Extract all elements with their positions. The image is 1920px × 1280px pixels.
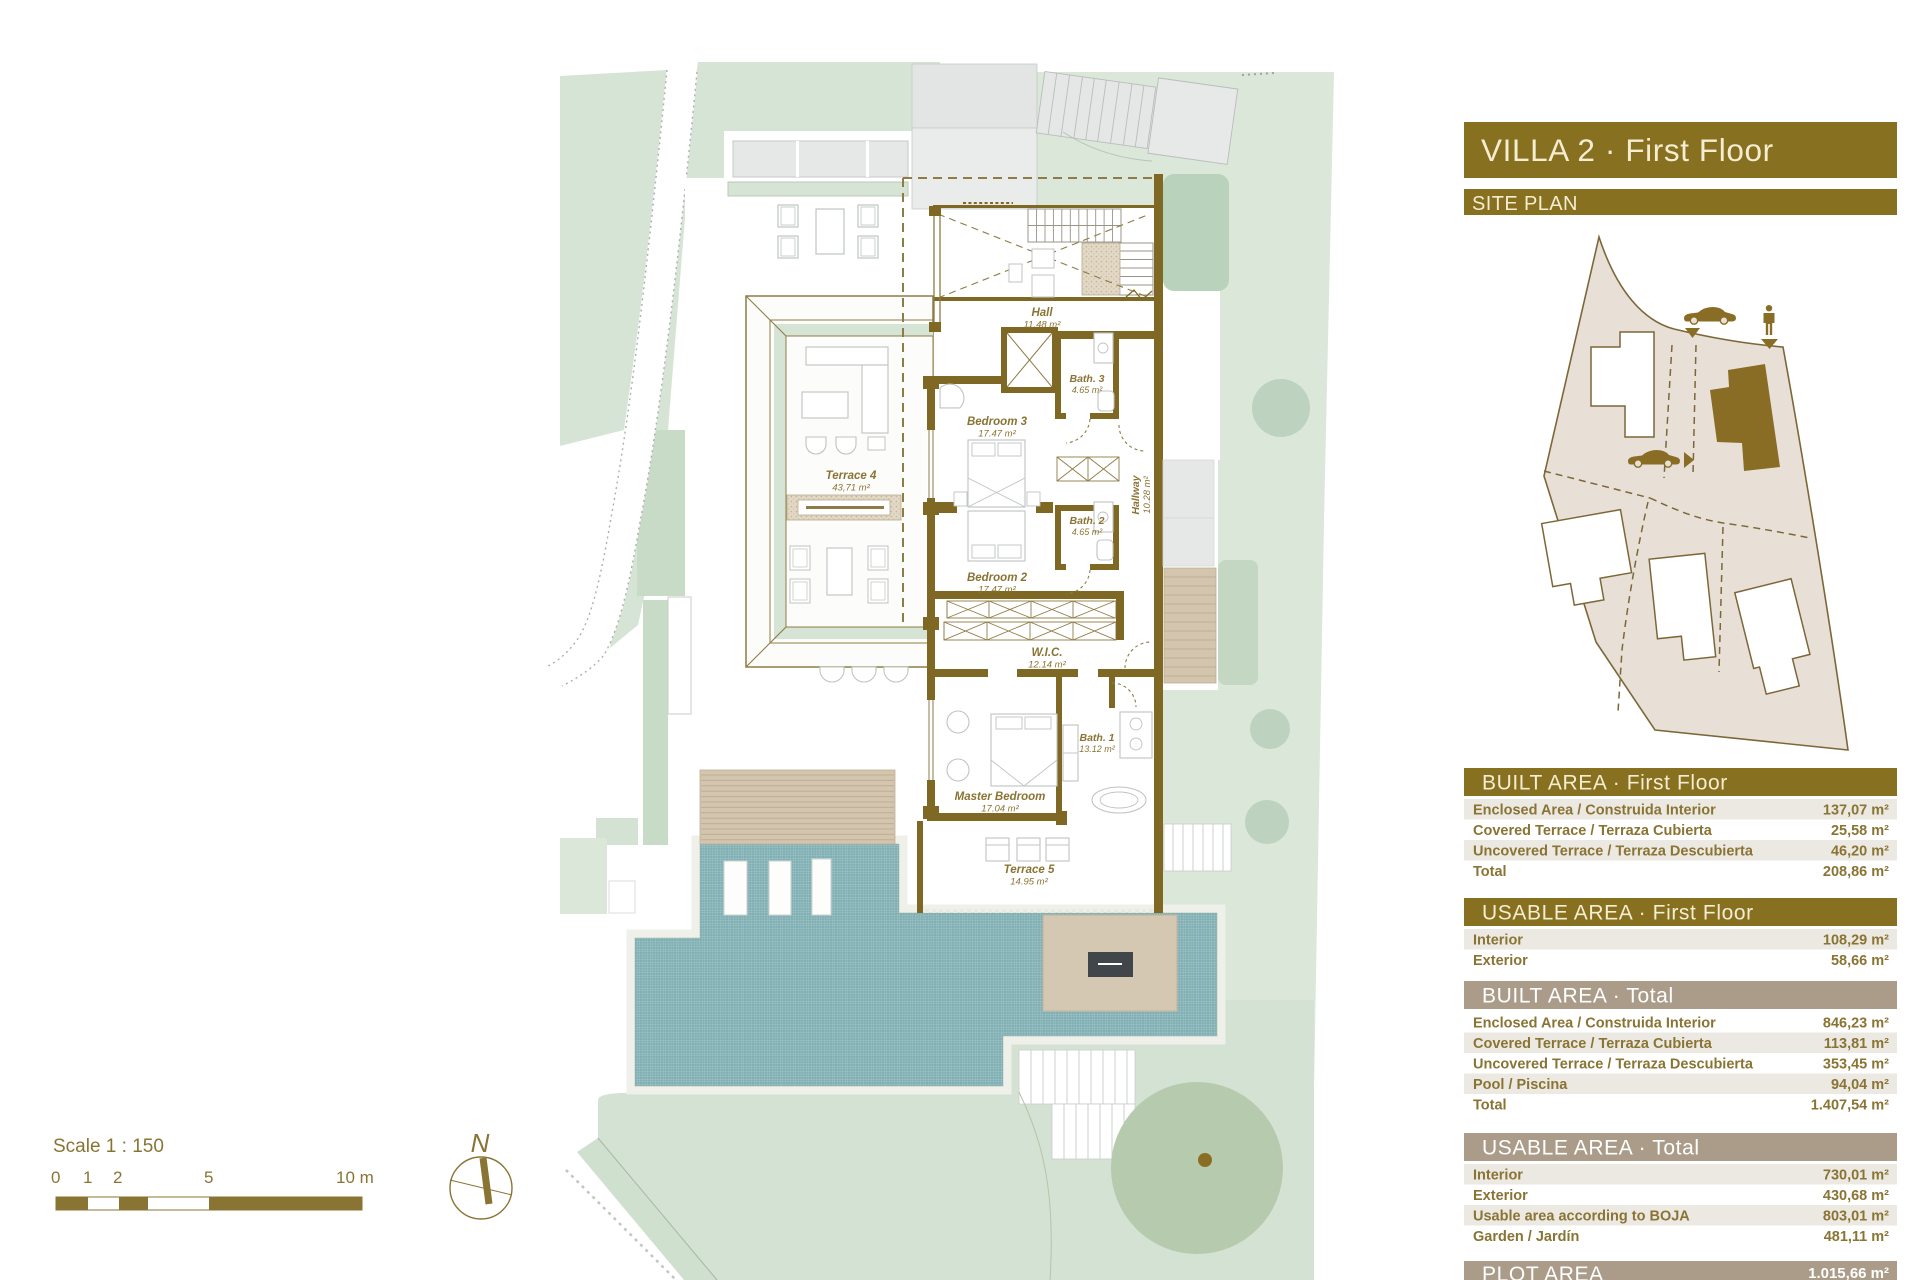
- svg-text:Bedroom 3: Bedroom 3: [967, 416, 1028, 428]
- svg-text:W.I.C.: W.I.C.: [1031, 647, 1062, 659]
- svg-text:46,20 m²: 46,20 m²: [1831, 844, 1889, 860]
- svg-text:846,23 m²: 846,23 m²: [1823, 1016, 1889, 1032]
- svg-text:803,01 m²: 803,01 m²: [1823, 1209, 1889, 1225]
- svg-text:4.65 m²: 4.65 m²: [1072, 385, 1104, 395]
- svg-text:481,11 m²: 481,11 m²: [1824, 1229, 1889, 1245]
- svg-text:Hallway: Hallway: [1130, 474, 1142, 514]
- svg-text:17.47 m²: 17.47 m²: [978, 429, 1016, 440]
- svg-text:Enclosed Area / Construida Int: Enclosed Area / Construida Interior: [1473, 803, 1716, 819]
- svg-text:25,58 m²: 25,58 m²: [1831, 823, 1889, 839]
- svg-text:108,29 m²: 108,29 m²: [1823, 933, 1889, 949]
- svg-text:Total: Total: [1473, 1098, 1507, 1114]
- svg-text:Exterior: Exterior: [1473, 953, 1528, 969]
- svg-text:730,01 m²: 730,01 m²: [1823, 1168, 1889, 1184]
- svg-text:353,45 m²: 353,45 m²: [1823, 1057, 1889, 1073]
- svg-text:Terrace 4: Terrace 4: [826, 470, 877, 482]
- svg-text:Covered Terrace / Terraza Cubi: Covered Terrace / Terraza Cubierta: [1473, 1036, 1713, 1052]
- svg-text:Garden / Jardín: Garden / Jardín: [1473, 1229, 1579, 1245]
- svg-text:N: N: [471, 1128, 490, 1158]
- svg-text:10.28 m²: 10.28 m²: [1142, 475, 1153, 513]
- svg-text:4.65 m²: 4.65 m²: [1072, 527, 1104, 537]
- svg-text:Terrace 5: Terrace 5: [1004, 864, 1055, 876]
- svg-text:Bath. 3: Bath. 3: [1069, 373, 1104, 385]
- svg-text:430,68 m²: 430,68 m²: [1823, 1188, 1889, 1204]
- svg-text:BUILT AREA · Total: BUILT AREA · Total: [1482, 985, 1674, 1008]
- svg-text:BUILT AREA · First Floor: BUILT AREA · First Floor: [1482, 772, 1728, 795]
- svg-text:Interior: Interior: [1473, 1168, 1523, 1184]
- svg-text:0: 0: [51, 1168, 60, 1187]
- svg-text:43,71 m²: 43,71 m²: [832, 483, 870, 494]
- svg-text:208,86 m²: 208,86 m²: [1823, 864, 1889, 880]
- svg-text:Hall: Hall: [1031, 307, 1053, 319]
- svg-text:SITE PLAN: SITE PLAN: [1472, 193, 1578, 215]
- svg-text:Bath. 1: Bath. 1: [1079, 732, 1114, 744]
- svg-text:Bedroom 2: Bedroom 2: [967, 572, 1028, 584]
- svg-text:17.04 m²: 17.04 m²: [981, 804, 1019, 815]
- svg-text:113,81 m²: 113,81 m²: [1824, 1036, 1889, 1052]
- svg-text:Scale 1 : 150: Scale 1 : 150: [53, 1136, 164, 1157]
- svg-text:13.12 m²: 13.12 m²: [1079, 744, 1116, 754]
- svg-text:58,66 m²: 58,66 m²: [1831, 953, 1889, 969]
- svg-text:Pool / Piscina: Pool / Piscina: [1473, 1077, 1568, 1093]
- svg-text:17.47 m²: 17.47 m²: [978, 585, 1016, 596]
- svg-text:Usable area according to BOJA: Usable area according to BOJA: [1473, 1209, 1690, 1225]
- svg-text:Enclosed Area / Construida Int: Enclosed Area / Construida Interior: [1473, 1016, 1716, 1032]
- svg-text:5: 5: [204, 1168, 213, 1187]
- svg-text:1.407,54 m²: 1.407,54 m²: [1811, 1098, 1889, 1114]
- svg-text:Total: Total: [1473, 864, 1507, 880]
- svg-text:14.95 m²: 14.95 m²: [1010, 877, 1048, 888]
- svg-text:12.14 m²: 12.14 m²: [1028, 660, 1066, 671]
- svg-text:Interior: Interior: [1473, 933, 1523, 949]
- svg-text:11.48 m²: 11.48 m²: [1024, 320, 1062, 331]
- svg-text:137,07 m²: 137,07 m²: [1823, 803, 1889, 819]
- svg-text:Master Bedroom: Master Bedroom: [955, 791, 1046, 803]
- svg-text:2: 2: [113, 1168, 122, 1187]
- svg-text:USABLE AREA · First Floor: USABLE AREA · First Floor: [1482, 902, 1754, 925]
- svg-text:Bath. 2: Bath. 2: [1069, 515, 1104, 527]
- svg-text:94,04 m²: 94,04 m²: [1831, 1077, 1889, 1093]
- svg-text:PLOT AREA: PLOT AREA: [1482, 1263, 1604, 1280]
- svg-text:Uncovered Terrace / Terraza De: Uncovered Terrace / Terraza Descubierta: [1473, 844, 1754, 860]
- svg-text:Covered Terrace / Terraza Cubi: Covered Terrace / Terraza Cubierta: [1473, 823, 1713, 839]
- svg-text:USABLE AREA · Total: USABLE AREA · Total: [1482, 1137, 1700, 1160]
- svg-text:Uncovered Terrace / Terraza De: Uncovered Terrace / Terraza Descubierta: [1473, 1057, 1754, 1073]
- svg-text:1: 1: [83, 1168, 92, 1187]
- svg-text:VILLA 2 · First Floor: VILLA 2 · First Floor: [1481, 132, 1774, 168]
- svg-text:1.015,66 m²: 1.015,66 m²: [1808, 1265, 1889, 1280]
- svg-text:10 m: 10 m: [336, 1168, 374, 1187]
- svg-text:Exterior: Exterior: [1473, 1188, 1528, 1204]
